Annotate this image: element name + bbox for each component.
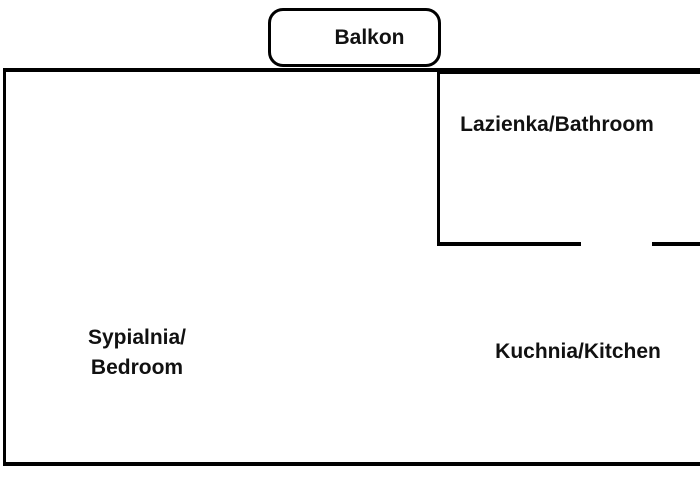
kitchen-label: Kuchnia/Kitchen xyxy=(478,337,678,367)
bathroom-label: Lazienka/Bathroom xyxy=(457,110,657,140)
apartment-left-wall xyxy=(3,68,6,466)
apartment-top-wall-right xyxy=(437,68,700,74)
bathroom-bottom-wall-right xyxy=(652,242,700,246)
bathroom-left-wall xyxy=(437,72,440,246)
apartment-top-wall-left xyxy=(3,68,437,72)
apartment-bottom-wall xyxy=(3,462,700,466)
balcony-room: Balkon xyxy=(268,8,441,67)
bathroom-bottom-wall-left xyxy=(437,242,581,246)
balcony-label: Balkon xyxy=(334,23,404,53)
floor-plan-diagram: Balkon Lazienka/Bathroom Sypialnia/ Bedr… xyxy=(0,0,700,500)
bedroom-label: Sypialnia/ Bedroom xyxy=(37,323,237,383)
